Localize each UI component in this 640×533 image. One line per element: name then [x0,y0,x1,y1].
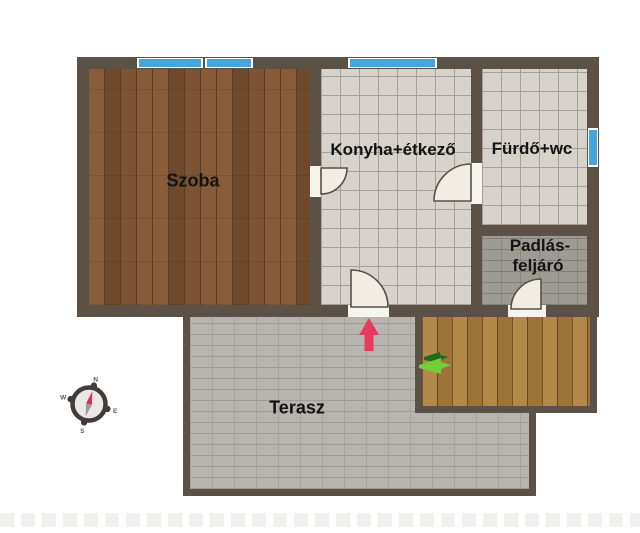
floor-plan-canvas: Szoba Konyha+étkező Fürdő+wc Padlás- fel… [0,0,640,533]
room-konyha-label: Konyha+étkező [330,140,455,160]
window-furdo-icon [588,128,598,167]
room-terasz-label: Terasz [269,398,325,419]
window-konyha-icon [348,58,437,68]
compass-label-s: S [80,428,85,434]
door-opening-padlas [508,305,546,317]
window-szoba-left-icon [137,58,203,68]
deck-floor [422,307,590,406]
door-opening-szoba-konyha [310,166,321,197]
room-konyha-floor [321,69,471,305]
compass-rose-icon: N E S W [59,374,119,434]
room-padlas-label-line2: feljáró [512,256,563,276]
door-opening-entrance [348,305,389,317]
room-padlas-label-line1: Padlás- [510,236,570,256]
window-szoba-right-icon [205,58,253,68]
room-szoba-label: Szoba [166,171,219,192]
faint-paver-band [0,513,640,527]
compass-label-e: E [113,408,118,415]
compass-label-n: N [93,377,98,384]
compass-label-w: W [60,395,67,402]
door-opening-konyha-furdo [471,163,482,204]
room-furdo-label: Fürdő+wc [492,139,573,159]
